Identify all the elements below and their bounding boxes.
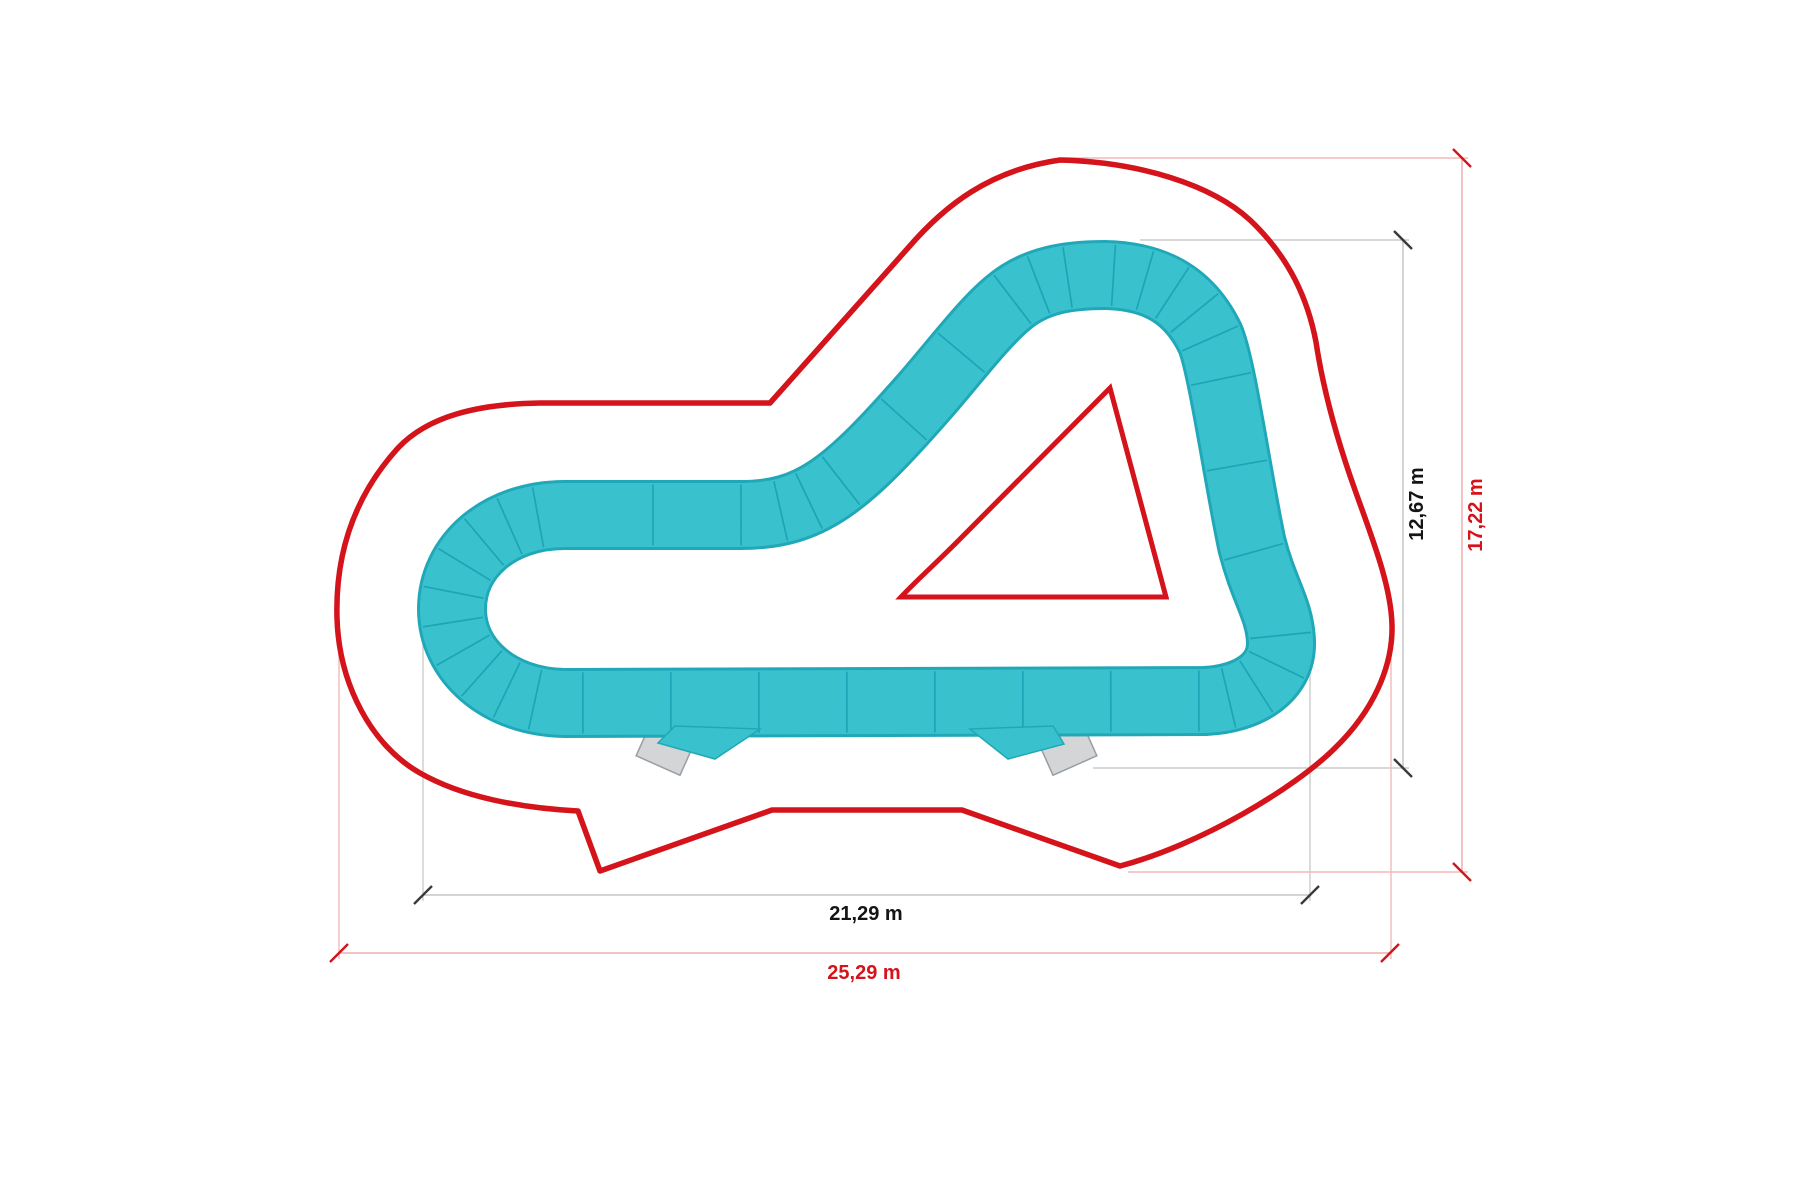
pump-track-loop xyxy=(423,245,1311,759)
pump-track-plan-diagram: 21,29 m 25,29 m 12,67 m 17,22 m xyxy=(0,0,1800,1200)
zone-height-label: 17,22 m xyxy=(1465,478,1487,551)
pump-track-plan-page: 21,29 m 25,29 m 12,67 m 17,22 m xyxy=(0,0,1800,1200)
track-surface xyxy=(452,275,1281,703)
track-height-label: 12,67 m xyxy=(1406,467,1428,540)
zone-width-label: 25,29 m xyxy=(827,962,900,984)
track-width-label: 21,29 m xyxy=(829,903,902,925)
